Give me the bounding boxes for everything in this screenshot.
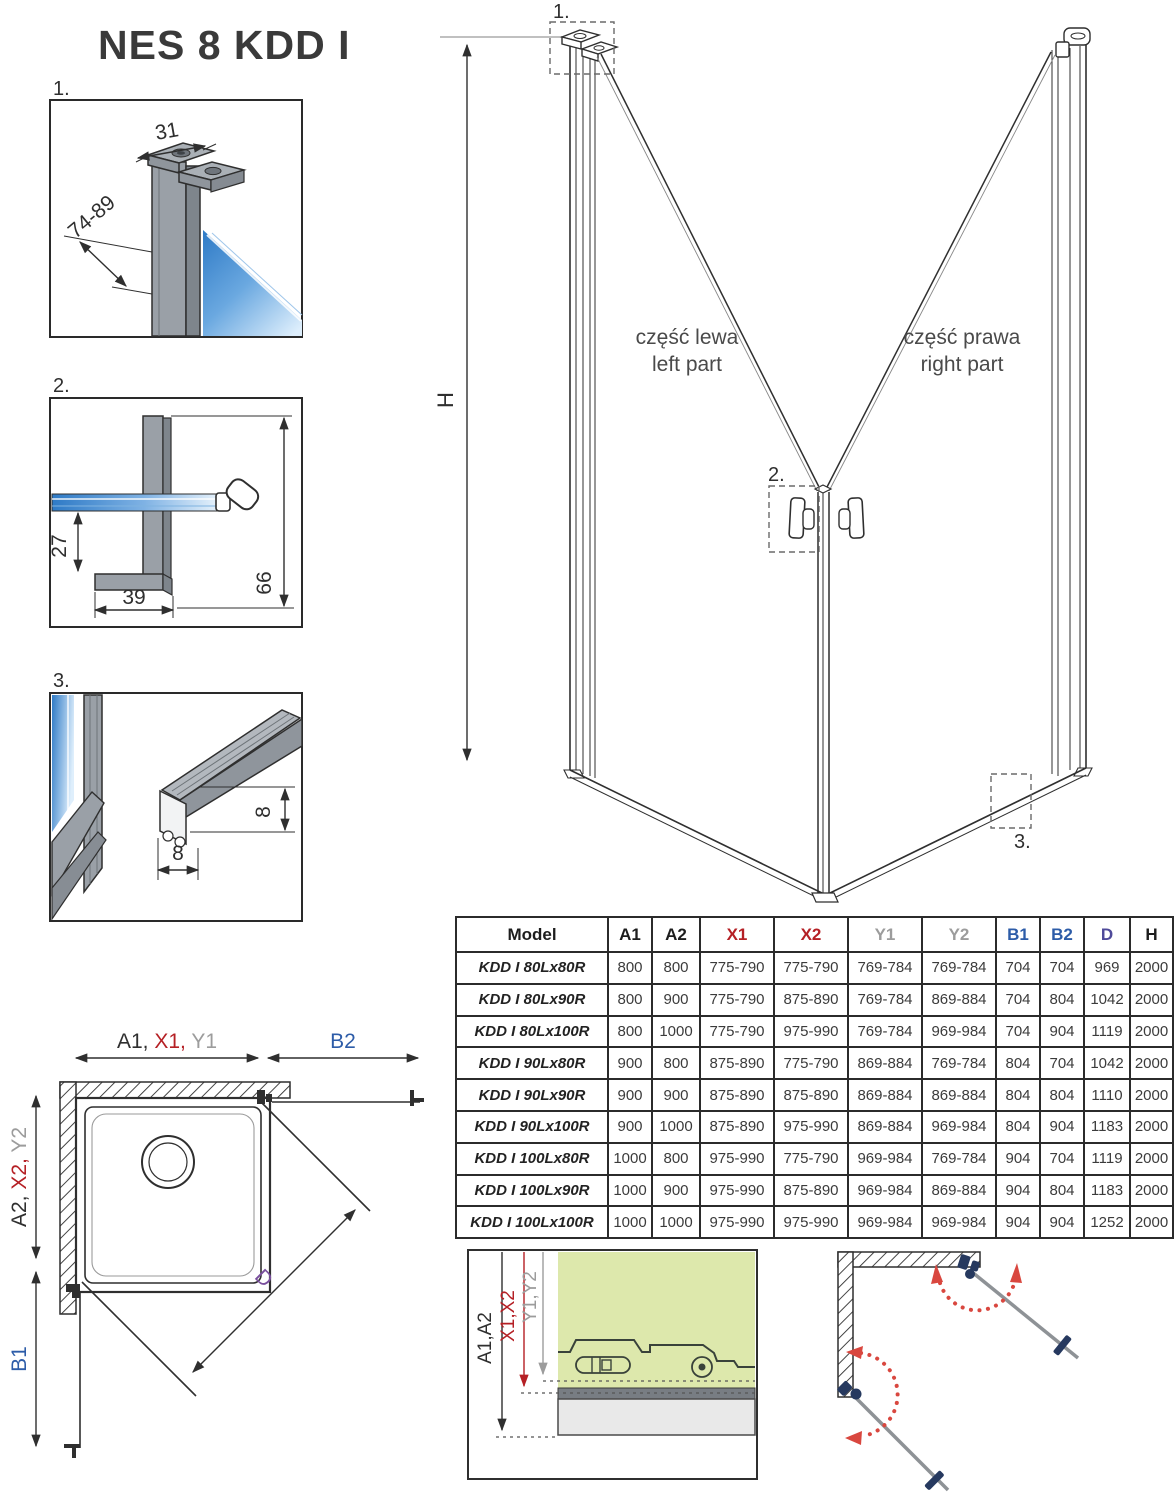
detail-1: 1. 31 <box>50 78 302 337</box>
cell-b2: 804 <box>1040 1079 1084 1111</box>
right-wall-profile <box>1052 28 1092 776</box>
left-part-label-pl: część lewa <box>636 326 739 349</box>
cell-b2: 704 <box>1040 1143 1084 1175</box>
cell-a1: 900 <box>608 1047 652 1079</box>
cell-a2: 1000 <box>652 1206 700 1238</box>
cell-a2: 900 <box>652 984 700 1016</box>
table-header-row: Model A1 A2 X1 X2 Y1 Y2 B1 B2 D H <box>456 917 1173 952</box>
cell-x2: 975-990 <box>774 1206 848 1238</box>
left-part-label-en: left part <box>652 353 722 376</box>
right-part-label-pl: część prawa <box>904 326 1021 349</box>
cell-a2: 1000 <box>652 1111 700 1143</box>
header-h: H <box>1130 917 1173 952</box>
spec-sheet: NES 8 KDD I <box>0 0 1174 1512</box>
cell-b1: 704 <box>996 1016 1040 1048</box>
cell-d: 969 <box>1084 952 1130 984</box>
cell-model: KDD I 100Lx100R <box>456 1206 608 1238</box>
cell-d: 1042 <box>1084 1047 1130 1079</box>
label-x1x2: X1,X2 <box>498 1290 519 1342</box>
right-part-label-en: right part <box>921 353 1004 376</box>
cell-a1: 800 <box>608 984 652 1016</box>
callout-3: 3. <box>1014 831 1031 853</box>
header-y1: Y1 <box>848 917 922 952</box>
cell-model: KDD I 90Lx80R <box>456 1047 608 1079</box>
cell-x1: 975-990 <box>700 1175 774 1207</box>
table-row: KDD I 90Lx80R900800875-890775-790869-884… <box>456 1047 1173 1079</box>
callout-1: 1. <box>553 1 570 23</box>
cell-d: 1042 <box>1084 984 1130 1016</box>
cell-y2: 769-784 <box>922 1143 996 1175</box>
cell-x1: 775-790 <box>700 1016 774 1048</box>
cell-y1: 969-984 <box>848 1175 922 1207</box>
cell-y1: 869-884 <box>848 1079 922 1111</box>
cell-a2: 800 <box>652 1047 700 1079</box>
cell-y2: 969-984 <box>922 1111 996 1143</box>
header-b2: B2 <box>1040 917 1084 952</box>
cell-x2: 875-890 <box>774 984 848 1016</box>
cell-h: 2000 <box>1130 1111 1173 1143</box>
table-row: KDD I 90Lx90R900900875-890875-890869-884… <box>456 1079 1173 1111</box>
cell-b2: 804 <box>1040 1175 1084 1207</box>
table-row: KDD I 100Lx90R1000900975-990875-890969-9… <box>456 1175 1173 1207</box>
cell-b1: 704 <box>996 984 1040 1016</box>
cell-x1: 875-890 <box>700 1047 774 1079</box>
cell-b2: 904 <box>1040 1206 1084 1238</box>
main-drawing: H <box>433 1 1092 902</box>
header-b1: B1 <box>996 917 1040 952</box>
cell-h: 2000 <box>1130 1047 1173 1079</box>
cell-model: KDD I 80Lx100R <box>456 1016 608 1048</box>
cell-model: KDD I 90Lx100R <box>456 1111 608 1143</box>
door-bottom <box>852 1394 948 1490</box>
cell-y2: 969-984 <box>922 1016 996 1048</box>
label-a1a2: A1,A2 <box>475 1312 496 1364</box>
table-row: KDD I 80Lx90R800900775-790875-890769-784… <box>456 984 1173 1016</box>
dim-H: H <box>433 392 458 408</box>
cell-x1: 975-990 <box>700 1206 774 1238</box>
cell-d: 1252 <box>1084 1206 1130 1238</box>
spec-table: Model A1 A2 X1 X2 Y1 Y2 B1 B2 D H KDD I … <box>455 916 1174 1239</box>
cell-b1: 704 <box>996 952 1040 984</box>
cell-b1: 904 <box>996 1206 1040 1238</box>
cell-y2: 769-784 <box>922 1047 996 1079</box>
cell-b1: 804 <box>996 1047 1040 1079</box>
glass-pane <box>52 494 220 511</box>
cell-b1: 804 <box>996 1079 1040 1111</box>
wall-profile <box>152 162 186 336</box>
header-x2: X2 <box>774 917 848 952</box>
cell-b2: 904 <box>1040 1111 1084 1143</box>
technical-drawing: 1. 31 <box>0 0 1174 1512</box>
cell-a1: 800 <box>608 1016 652 1048</box>
cell-b2: 804 <box>1040 984 1084 1016</box>
cell-a2: 900 <box>652 1079 700 1111</box>
cell-d: 1119 <box>1084 1016 1130 1048</box>
cell-x1: 775-790 <box>700 984 774 1016</box>
cell-a1: 1000 <box>608 1175 652 1207</box>
cell-h: 2000 <box>1130 1206 1173 1238</box>
drain <box>142 1136 194 1188</box>
cell-b2: 704 <box>1040 952 1084 984</box>
dim-66: 66 <box>253 571 276 594</box>
cell-h: 2000 <box>1130 1175 1173 1207</box>
cell-x2: 875-890 <box>774 1175 848 1207</box>
header-a1: A1 <box>608 917 652 952</box>
cell-a1: 900 <box>608 1079 652 1111</box>
center-post <box>812 485 838 902</box>
dim-31: 31 <box>153 118 180 145</box>
header-a2: A2 <box>652 917 700 952</box>
cell-a1: 1000 <box>608 1143 652 1175</box>
right-door-handle <box>839 498 864 539</box>
wall-left <box>60 1082 76 1314</box>
cell-a2: 900 <box>652 1175 700 1207</box>
dim-b1: B1 <box>8 1346 31 1372</box>
header-model: Model <box>456 917 608 952</box>
cell-x1: 875-890 <box>700 1079 774 1111</box>
cell-a1: 900 <box>608 1111 652 1143</box>
right-glass-panel <box>826 52 1086 899</box>
label-y1y2: Y1,Y2 <box>520 1271 541 1323</box>
tray-edge <box>558 1399 755 1435</box>
cell-a1: 800 <box>608 952 652 984</box>
cell-h: 2000 <box>1130 1143 1173 1175</box>
cell-y1: 769-784 <box>848 952 922 984</box>
dim-a1x1y1: A1, X1, Y1 <box>117 1030 217 1053</box>
cell-b1: 804 <box>996 1111 1040 1143</box>
callout-3-box <box>991 774 1031 828</box>
cell-h: 2000 <box>1130 952 1173 984</box>
cell-x1: 975-990 <box>700 1143 774 1175</box>
dim-8-width: 8 <box>172 842 184 865</box>
cell-b2: 704 <box>1040 1047 1084 1079</box>
detail-1-label: 1. <box>53 78 70 100</box>
cell-d: 1183 <box>1084 1175 1130 1207</box>
cell-model: KDD I 100Lx80R <box>456 1143 608 1175</box>
table-row: KDD I 100Lx100R10001000975-990975-990969… <box>456 1206 1173 1238</box>
dim-27: 27 <box>48 534 71 557</box>
cell-b1: 904 <box>996 1143 1040 1175</box>
detail-3: 3. 8 <box>50 670 302 921</box>
detail-2: 2. 27 39 66 <box>48 375 302 627</box>
cell-h: 2000 <box>1130 1079 1173 1111</box>
cell-a2: 800 <box>652 1143 700 1175</box>
cell-model: KDD I 90Lx90R <box>456 1079 608 1111</box>
plan-view: D A1, X1, Y1 B2 A2, X2, Y2 B1 <box>8 1030 424 1458</box>
cell-a2: 1000 <box>652 1016 700 1048</box>
cell-y2: 869-884 <box>922 1079 996 1111</box>
dim-39: 39 <box>122 586 145 609</box>
cell-x2: 975-990 <box>774 1111 848 1143</box>
cell-y1: 869-884 <box>848 1111 922 1143</box>
left-door-handle <box>789 498 814 539</box>
cell-d: 1119 <box>1084 1143 1130 1175</box>
cell-x2: 775-790 <box>774 1143 848 1175</box>
wall-left <box>838 1252 853 1397</box>
header-y2: Y2 <box>922 917 996 952</box>
cell-model: KDD I 100Lx90R <box>456 1175 608 1207</box>
cell-y2: 869-884 <box>922 984 996 1016</box>
swing-view <box>837 1252 1078 1491</box>
cell-a2: 800 <box>652 952 700 984</box>
wall-top <box>60 1082 290 1098</box>
detail-3-label: 3. <box>53 670 70 692</box>
cell-b1: 904 <box>996 1175 1040 1207</box>
cell-x2: 975-990 <box>774 1016 848 1048</box>
cell-x1: 775-790 <box>700 952 774 984</box>
door-open-right <box>262 1103 370 1211</box>
handle-bottom <box>924 1470 945 1491</box>
table-row: KDD I 80Lx100R8001000775-790975-990769-7… <box>456 1016 1173 1048</box>
cell-model: KDD I 80Lx80R <box>456 952 608 984</box>
cell-y1: 969-984 <box>848 1143 922 1175</box>
table-row: KDD I 80Lx80R800800775-790775-790769-784… <box>456 952 1173 984</box>
cell-x2: 775-790 <box>774 952 848 984</box>
cell-d: 1183 <box>1084 1111 1130 1143</box>
dim-b2: B2 <box>330 1030 356 1053</box>
header-d: D <box>1084 917 1130 952</box>
cell-y2: 769-784 <box>922 952 996 984</box>
table-row: KDD I 90Lx100R9001000875-890975-990869-8… <box>456 1111 1173 1143</box>
dim-8-height: 8 <box>252 806 275 818</box>
adjustment-zone <box>558 1252 755 1388</box>
cell-h: 2000 <box>1130 1016 1173 1048</box>
cell-model: KDD I 80Lx90R <box>456 984 608 1016</box>
callout-2: 2. <box>768 464 785 486</box>
cell-x2: 775-790 <box>774 1047 848 1079</box>
cell-d: 1110 <box>1084 1079 1130 1111</box>
cell-y2: 969-984 <box>922 1206 996 1238</box>
cell-y1: 769-784 <box>848 984 922 1016</box>
swing-arrow <box>845 1431 862 1445</box>
install-view: A1,A2 X1,X2 Y1,Y2 <box>468 1250 757 1479</box>
table-body: KDD I 80Lx80R800800775-790775-790769-784… <box>456 952 1173 1238</box>
cell-y2: 869-884 <box>922 1175 996 1207</box>
door-open-bottom <box>82 1282 196 1396</box>
header-x1: X1 <box>700 917 774 952</box>
cell-a1: 1000 <box>608 1206 652 1238</box>
cell-y1: 969-984 <box>848 1206 922 1238</box>
left-wall-profile <box>562 30 617 778</box>
cell-x1: 875-890 <box>700 1111 774 1143</box>
dim-a2x2y2: A2, X2, Y2 <box>8 1127 31 1227</box>
detail-2-label: 2. <box>53 375 70 397</box>
cell-x2: 875-890 <box>774 1079 848 1111</box>
cell-y1: 769-784 <box>848 1016 922 1048</box>
cell-b2: 904 <box>1040 1016 1084 1048</box>
swing-arrow <box>1010 1263 1022 1283</box>
cell-y1: 869-884 <box>848 1047 922 1079</box>
cell-h: 2000 <box>1130 984 1173 1016</box>
table-row: KDD I 100Lx80R1000800975-990775-790969-9… <box>456 1143 1173 1175</box>
